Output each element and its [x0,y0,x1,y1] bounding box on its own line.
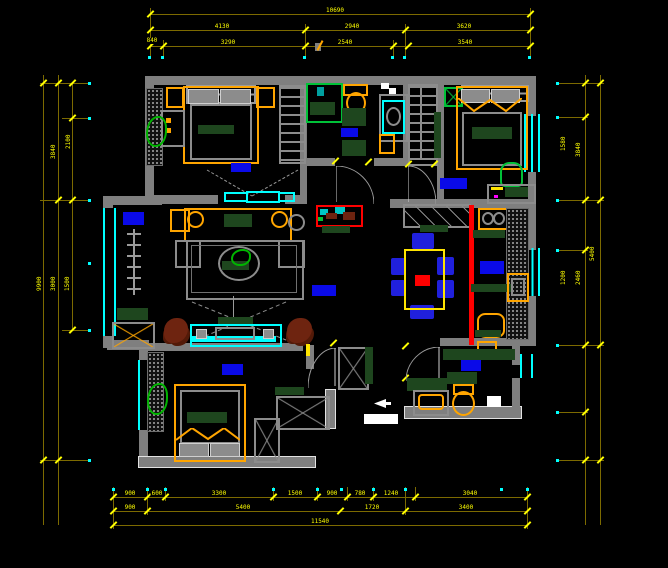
kitchen-base-green [475,330,501,337]
door-threshold [224,192,248,202]
cabinet-base [322,226,350,233]
dim-label: 840 [146,38,159,44]
nightstand-left [166,87,184,108]
dim-ext-line [62,118,90,119]
axis-dot [556,344,559,347]
bath2-basin [418,394,444,410]
dim-line [113,497,527,498]
bath2-counter-top [443,349,515,360]
window-balcony-left [103,208,116,336]
dim-label: 3400 [458,505,474,511]
bed1-pillow [188,89,219,104]
window-bath2 [520,354,533,378]
axis-dot [88,82,91,85]
dim-line [72,83,73,330]
dim-label: 900 [124,505,137,511]
dresser-knob [166,118,171,123]
axis-dot [556,249,559,252]
room-label-bathroom1 [341,128,358,137]
door-swing-bath1 [336,166,374,204]
axis-dot [556,459,559,462]
dim-label: 1580 [561,136,567,152]
bed1-pillow [220,89,251,104]
dim-ext-line [40,200,90,201]
bath1-counter [342,140,366,156]
dim-label: 900 [124,491,137,497]
axis-dot [164,488,167,491]
axis-dot [526,488,529,491]
wall-balcony-post [103,196,113,208]
dim-label: 4130 [214,24,230,30]
axis-dot [88,262,91,265]
dim-line [150,46,530,47]
speaker [263,329,274,339]
wardrobe-bedroom1 [279,85,306,164]
door-threshold [278,192,295,202]
axis-dot [340,488,343,491]
dim-label: 2460 [576,270,582,286]
bed3-blanket [187,412,227,423]
kitchen-counter-green [471,284,511,292]
cabinet-item-green [318,217,323,221]
balcony-bench [117,308,148,320]
balcony-cabinet [112,322,155,349]
door-hinge [330,339,338,347]
axis-dot [556,116,559,119]
axis-dot [272,488,275,491]
room-label-bedroom2 [440,178,467,189]
axis-dot [146,488,149,491]
dim-ext-line [62,330,90,331]
dim-label: 2100 [66,134,72,150]
room-label-bedroom3 [222,364,243,375]
axis-dot [88,459,91,462]
entry-threshold [364,414,398,424]
axis-dot [372,488,375,491]
dim-line [150,30,530,31]
desk-item-green [505,187,528,197]
dim-line [113,511,527,512]
dim-ext-line [40,83,90,84]
dim-label: 1500 [287,491,303,497]
tv-screen [215,327,255,340]
wall-right-bath2-lower [512,378,520,410]
dim-label: 1500 [65,276,71,292]
kitchen-counter-green [473,230,505,238]
wall-right-upper-a [528,76,536,116]
axis-dot [161,56,164,59]
bed3-canopy-zigzag [176,428,240,442]
axis-dot [391,56,394,59]
axis-dot [528,56,531,59]
dim-label: 3000 [51,276,57,292]
dim-label: 1720 [364,505,380,511]
dim-label: 2540 [337,40,353,46]
dim-label: 10690 [325,8,345,14]
dining-chair-left [391,280,405,296]
door-swing-closet [408,166,436,204]
dim-label: 900 [326,491,339,497]
axis-dot [556,82,559,85]
dim-label: 5400 [590,246,596,262]
room-label-living [123,212,144,225]
floor-drain [487,396,501,407]
kitchen-sink-basin [511,278,525,296]
dim-label: 3300 [211,491,227,497]
cabinet-item-brown [343,212,355,220]
dim-label: 3840 [576,142,582,158]
dining-chair-left [391,258,405,275]
room-label-kitchen [480,261,504,274]
door-threshold [246,191,280,203]
shower-bench [310,102,335,115]
bath1-counter [342,108,366,126]
bed2-blanket [472,127,512,139]
bed3-pillow [210,443,240,457]
floor-plant-left [164,318,188,343]
sofa-end-table [170,209,190,232]
dim-label: 3620 [456,24,472,30]
door-hinge [365,158,373,166]
bath-accessory [381,83,389,89]
floor-plan-canvas: 10690 4130 2940 3620 840 3290 2540 3540 [0,0,668,568]
dim-label: 11540 [310,519,330,525]
toilet2-bowl [452,391,475,416]
bed2-mattress [462,112,522,166]
dim-line [113,525,527,526]
dim-label: 600 [151,491,164,497]
axis-dot [112,488,115,491]
dim-label: 3040 [462,491,478,497]
shower-head-icon [317,87,324,96]
door-swing-entry [308,348,336,388]
stove-burner [493,212,505,225]
axis-dot [303,56,306,59]
dim-label: 780 [354,491,367,497]
dim-label: 3540 [457,40,473,46]
bedroom3-closet [276,396,330,430]
door-swing-bath2 [406,347,440,381]
closet-shelf-green [275,387,304,395]
nightstand-right [256,87,275,108]
round-table [288,214,305,231]
dim-label: 2940 [344,24,360,30]
plant-bedroom3 [147,383,168,415]
axis-dot [556,411,559,414]
bed1-blanket [198,125,234,134]
axis-dot [500,488,503,491]
desk-item-magenta [494,195,498,198]
axis-dot [404,488,407,491]
wall-right-kitchen-a [528,208,536,250]
plant-stand-arms [127,233,141,293]
speaker [196,329,207,339]
axis-dot [88,199,91,202]
axis-dot [556,199,559,202]
dim-label: 9900 [37,276,43,292]
desk-item-yellow [491,187,503,190]
cabinet-item-brown [326,213,337,219]
floor-plant-right [287,318,312,343]
room-label-hall [312,285,336,296]
axis-dot [403,56,406,59]
closet-shelf [434,112,441,158]
washing-machine-drum [386,107,401,126]
bath2-counter-mid [447,372,477,384]
axis-dot [88,329,91,332]
axis-dot [316,488,319,491]
dim-label: 3840 [51,144,57,160]
dim-ext-line [40,460,90,461]
closet-hanging-rod [420,86,422,160]
dining-table-centerpiece [415,275,430,286]
dim-label: 1200 [561,270,567,286]
entry-cabinet-green [365,347,373,384]
dining-chair-top [412,233,434,249]
entry-arrow-tail [386,402,391,405]
dim-label: 5400 [235,505,251,511]
sofa-scroll-arm [271,211,288,228]
sliding-track-red [469,205,474,345]
entry-arrow-icon [374,399,386,408]
axis-dot [88,117,91,120]
dim-line [150,14,530,15]
sofa-cushion [224,214,252,227]
bed3-pillow [179,443,209,457]
axis-dot [148,56,151,59]
room-label-bathroom2 [461,360,481,371]
dim-label: 1240 [383,491,399,497]
water-heater [379,134,395,154]
dim-label: 3290 [220,40,236,46]
sideboard-base [420,225,448,232]
bedroom3-closet [254,418,280,463]
